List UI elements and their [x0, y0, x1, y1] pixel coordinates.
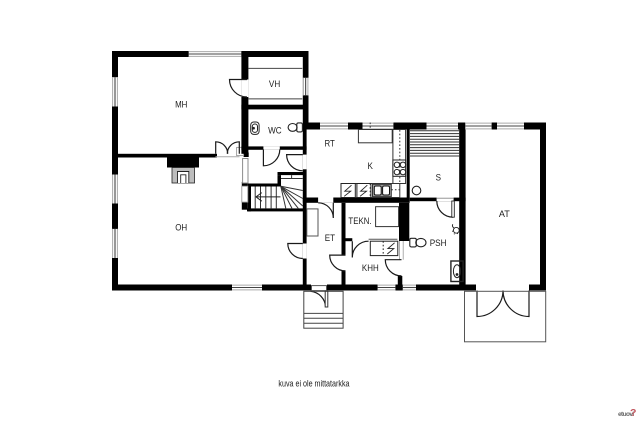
svg-text:KHH: KHH [362, 263, 379, 274]
svg-text:WC: WC [268, 125, 282, 136]
svg-text:TEKN.: TEKN. [348, 216, 371, 227]
svg-text:ET: ET [325, 233, 335, 244]
svg-text:S: S [436, 173, 441, 184]
svg-text:AT: AT [499, 209, 510, 220]
svg-text:MH: MH [175, 100, 187, 111]
svg-text:kuva ei ole mittatarkka: kuva ei ole mittatarkka [278, 378, 350, 389]
svg-text:OH: OH [175, 222, 187, 233]
svg-text:VH: VH [269, 79, 280, 90]
svg-text:K: K [368, 161, 374, 172]
svg-text:PSH: PSH [430, 238, 447, 249]
svg-text:RT: RT [325, 138, 335, 149]
